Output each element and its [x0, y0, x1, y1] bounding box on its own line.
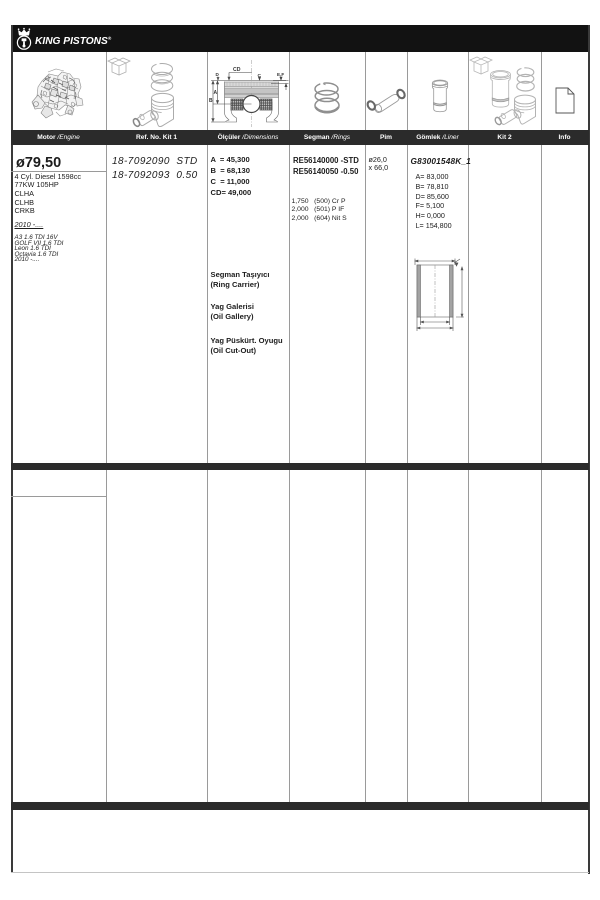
- svg-text:D: D: [216, 72, 220, 77]
- svg-text:C: C: [258, 73, 262, 79]
- svg-text:B: B: [209, 98, 213, 104]
- svg-text:A: A: [214, 90, 218, 96]
- svg-text:CD: CD: [233, 67, 241, 73]
- svg-text:E,F: E,F: [277, 72, 284, 77]
